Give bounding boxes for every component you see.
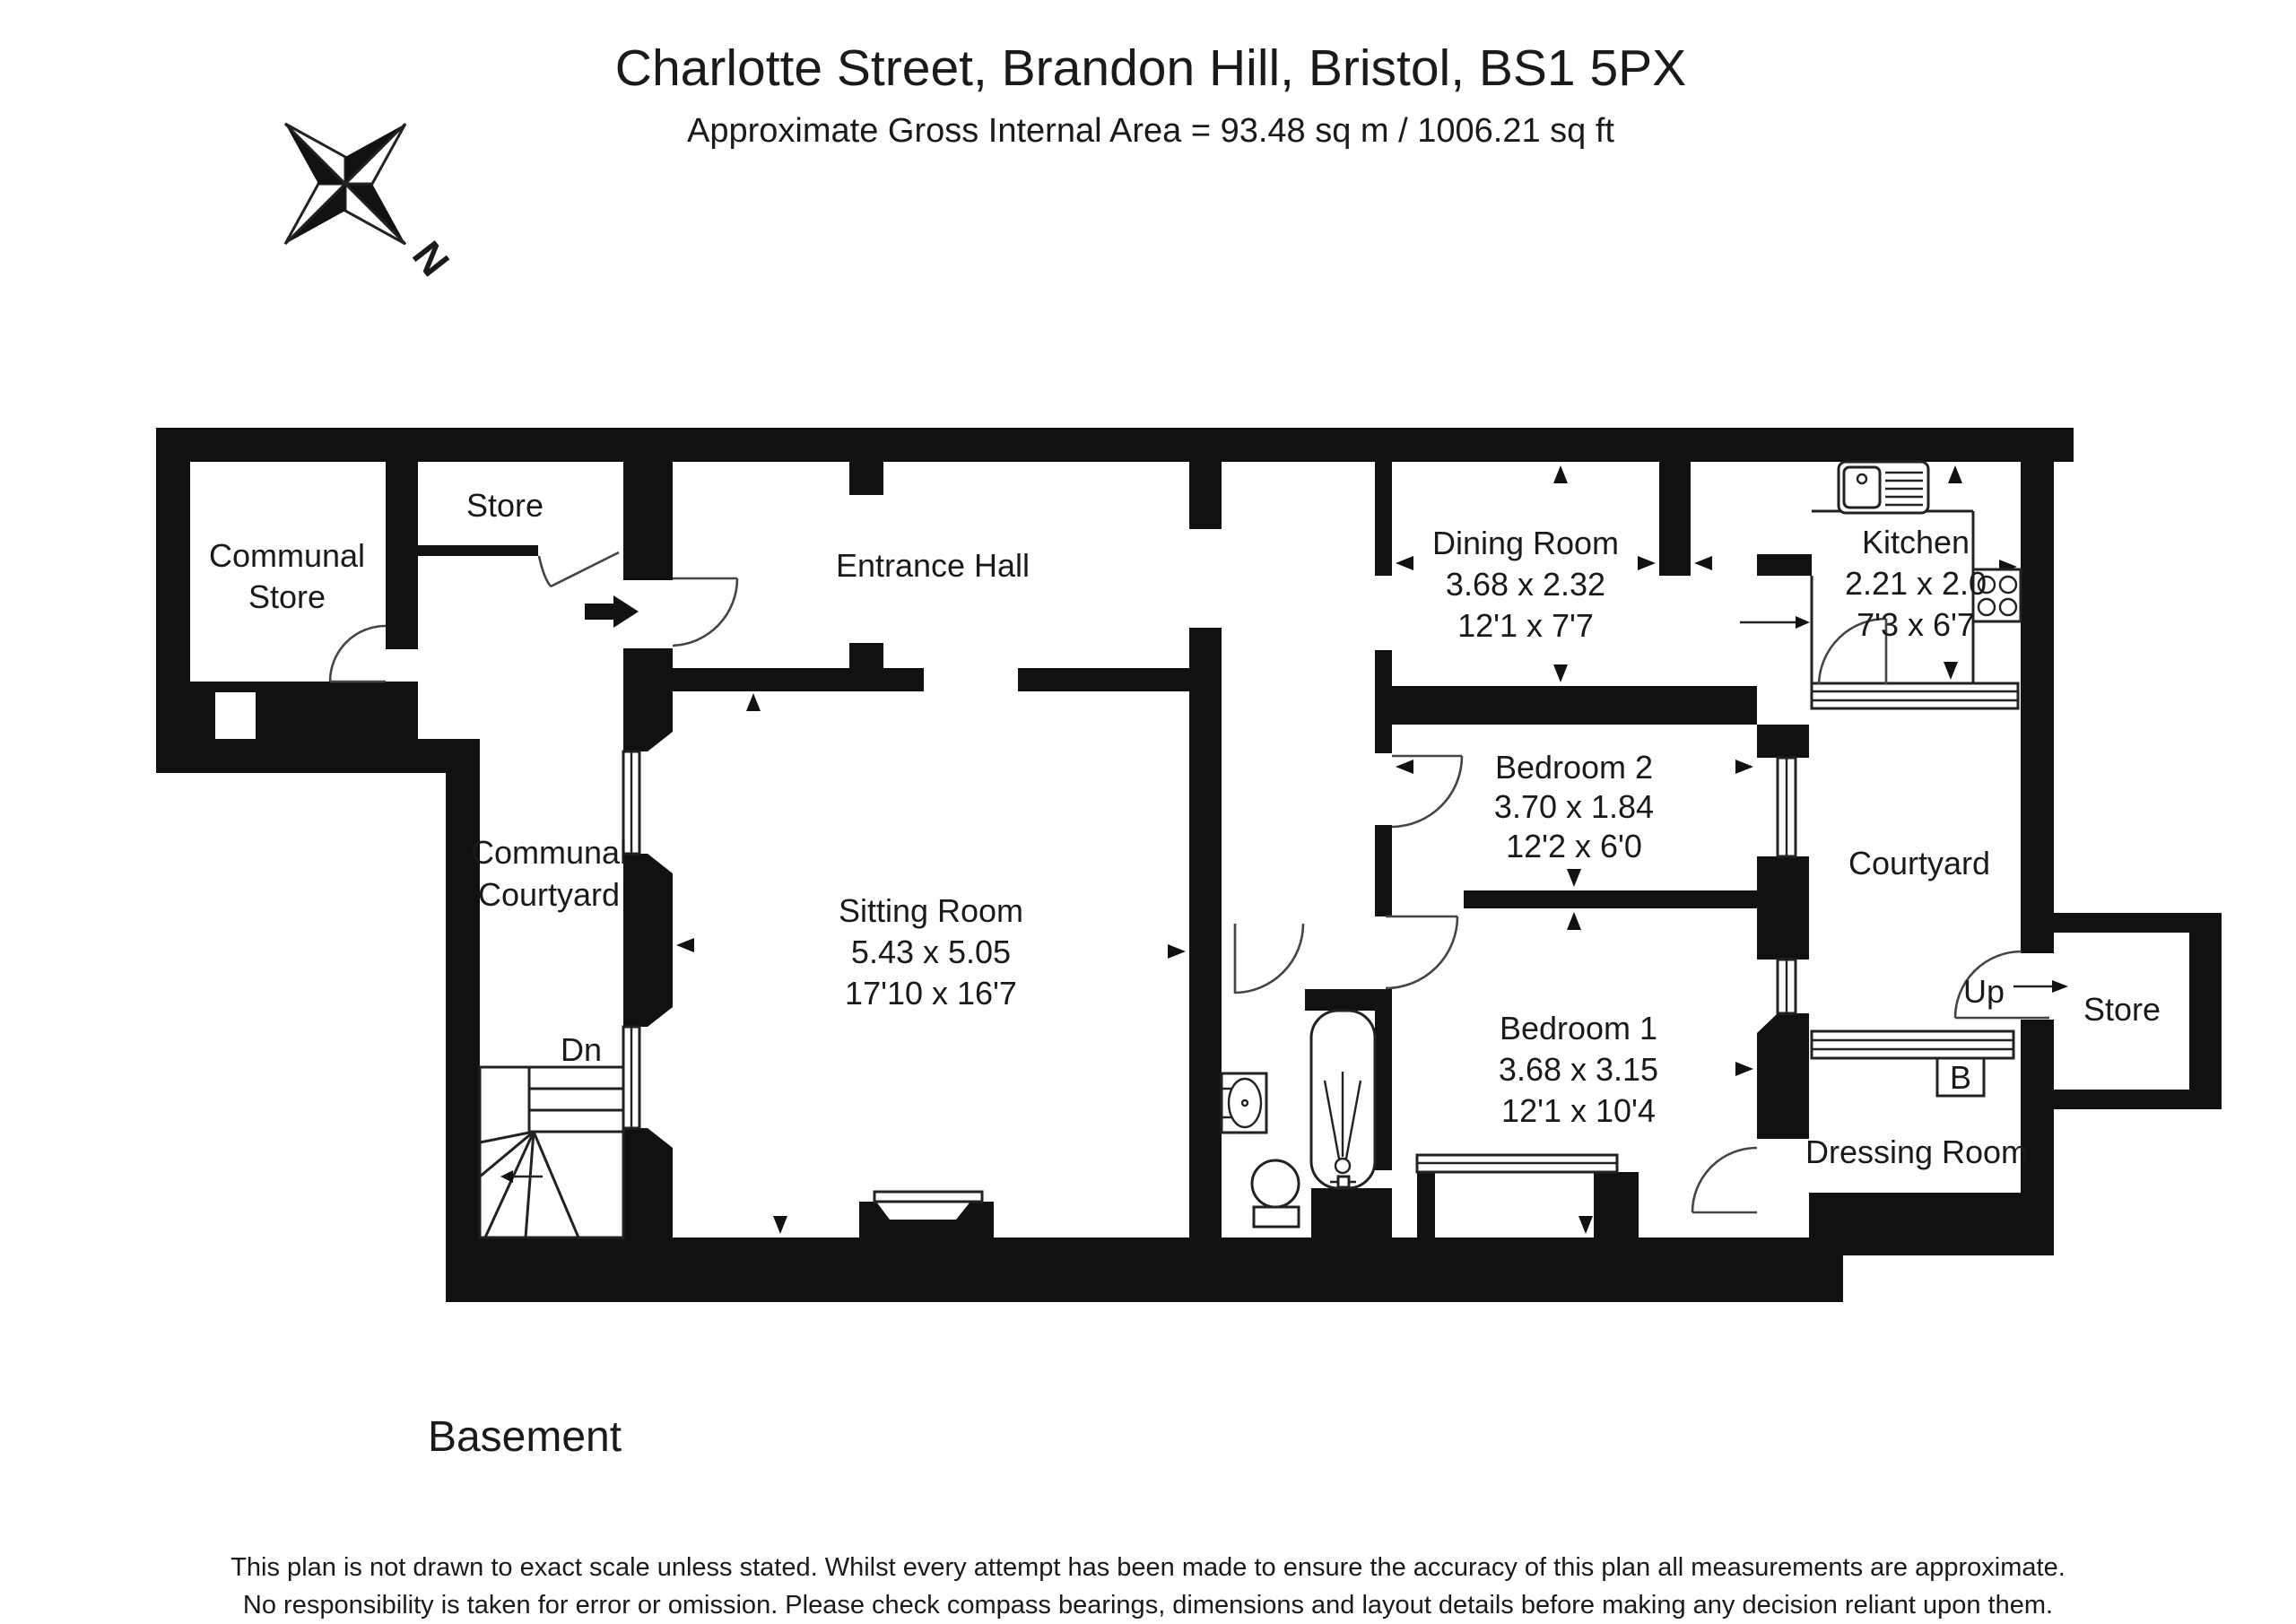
wall: [156, 739, 480, 773]
dim-arrow-down: [1567, 869, 1581, 887]
room-dims-bedroom2-imperial: 12'2 x 6'0: [1506, 828, 1642, 864]
room-dims-sitting-metric: 5.43 x 5.05: [851, 934, 1011, 970]
wall: [1417, 1172, 1435, 1238]
room-label-communal-store-2: Store: [248, 578, 326, 615]
dim-arrow-left: [676, 938, 694, 952]
wall: [1464, 890, 1757, 908]
door: [1235, 924, 1303, 994]
wall: [2047, 1090, 2222, 1109]
room-label-dining: Dining Room: [1432, 525, 1619, 561]
wall: [1594, 1172, 1639, 1238]
dim-arrow-down: [1578, 1216, 1593, 1234]
fireplace: [859, 1192, 994, 1238]
room-label-store-left: Store: [466, 487, 544, 524]
dim-arrow-up: [1948, 465, 1962, 483]
room-dims-kitchen-imperial: 7'3 x 6'7: [1857, 606, 1975, 643]
dim-arrow-right: [1168, 944, 1186, 959]
wall: [1757, 856, 1809, 960]
wall: [1311, 1188, 1392, 1238]
wall-recess: [215, 692, 256, 739]
room-dims-bedroom2-metric: 3.70 x 1.84: [1494, 788, 1654, 825]
bay-pier: [623, 854, 673, 1027]
wall: [1757, 554, 1812, 576]
bath-icon: [1311, 1011, 1375, 1188]
wall: [1375, 686, 1757, 725]
room-label-bedroom2: Bedroom 2: [1495, 749, 1653, 786]
room-dims-dining-metric: 3.68 x 2.32: [1446, 566, 1605, 603]
wall: [1375, 989, 1392, 1170]
wall: [446, 1238, 1843, 1302]
kitchen-flow-arrow: [1740, 616, 1810, 629]
wall: [623, 648, 673, 751]
window: [1778, 758, 1796, 856]
wall: [1189, 628, 1222, 1238]
room-label-communal-courtyard-2: Courtyard: [478, 876, 620, 913]
entry-arrow: [585, 595, 639, 628]
wall: [1305, 989, 1375, 1011]
wall: [2189, 913, 2222, 1109]
wall: [446, 739, 480, 1238]
room-label-kitchen: Kitchen: [1862, 524, 1970, 560]
dim-arrow-left: [1396, 760, 1413, 774]
page-subtitle: Approximate Gross Internal Area = 93.48 …: [687, 112, 1614, 150]
bay-pier: [623, 1128, 673, 1238]
wall: [673, 668, 924, 691]
door: [330, 626, 386, 682]
disclaimer-line1: This plan is not drawn to exact scale un…: [230, 1553, 2066, 1582]
room-dims-sitting-imperial: 17'10 x 16'7: [845, 975, 1017, 1012]
room-dims-bedroom1-imperial: 12'1 x 10'4: [1501, 1092, 1656, 1129]
room-label-bedroom1: Bedroom 1: [1500, 1010, 1657, 1046]
window: [623, 1027, 639, 1128]
stairs-up-label: Up: [1963, 973, 2005, 1010]
room-label-dressing: Dressing Room: [1805, 1133, 2028, 1170]
stairs-down-label: Dn: [561, 1031, 602, 1068]
room-dims-bedroom1-metric: 3.68 x 3.15: [1499, 1051, 1658, 1088]
dim-arrow-up: [1553, 465, 1568, 483]
window: [1778, 960, 1796, 1013]
dim-arrow-up: [1567, 912, 1581, 930]
wall: [1375, 825, 1392, 916]
chimney-pier: [849, 462, 883, 495]
dim-arrow-right: [1735, 760, 1753, 774]
wall: [1189, 462, 1222, 529]
store-flow-arrow: [2013, 980, 2068, 993]
window: [1812, 683, 2018, 708]
room-dims-dining-imperial: 12'1 x 7'7: [1457, 607, 1594, 644]
wall: [156, 428, 190, 773]
wall: [386, 462, 418, 649]
page-title: Charlotte Street, Brandon Hill, Bristol,…: [615, 39, 1686, 97]
boiler-label: B: [1950, 1059, 1971, 1096]
toilet-icon: [1252, 1160, 1299, 1227]
door: [1386, 916, 1457, 988]
dim-arrow-right: [1735, 1062, 1753, 1076]
wall: [1809, 1193, 2054, 1255]
room-label-sitting-room: Sitting Room: [839, 892, 1023, 929]
wall: [2021, 428, 2054, 953]
dim-arrow-up: [746, 693, 761, 711]
wall: [1375, 453, 1392, 576]
dim-arrow-left: [1694, 556, 1712, 570]
room-label-store-right: Store: [2083, 991, 2161, 1028]
door: [673, 578, 737, 646]
wall: [1757, 725, 1809, 758]
wall: [623, 428, 673, 580]
wall: [1757, 1013, 1809, 1139]
room-label-communal-store: Communal: [209, 537, 365, 574]
disclaimer-line2: No responsibility is taken for error or …: [243, 1591, 2053, 1620]
floorplan-page: Charlotte Street, Brandon Hill, Bristol,…: [0, 0, 2296, 1624]
floorplan-drawing: Charlotte Street, Brandon Hill, Bristol,…: [0, 0, 2296, 1624]
stairs: [480, 1067, 623, 1238]
door: [539, 552, 619, 586]
floor-label: Basement: [428, 1413, 622, 1461]
room-label-courtyard: Courtyard: [1848, 845, 1990, 881]
window: [1417, 1155, 1617, 1172]
sink-unit-icon: [1839, 462, 1928, 513]
dim-arrow-down: [1944, 662, 1958, 680]
wall: [1018, 668, 1189, 691]
wall: [156, 428, 2074, 462]
dim-arrow-right: [1638, 556, 1656, 570]
window: [1812, 1031, 2013, 1058]
room-label-entrance-hall: Entrance Hall: [836, 547, 1030, 584]
wall: [418, 545, 538, 556]
door: [1692, 1148, 1757, 1212]
dim-arrow-down: [773, 1216, 787, 1234]
room-label-communal-courtyard: Communal: [471, 834, 627, 871]
chimney-pier: [849, 643, 883, 691]
basin-icon: [1222, 1073, 1266, 1133]
wall: [1659, 428, 1691, 576]
north-label: N: [404, 232, 458, 284]
dim-arrow-left: [1396, 556, 1413, 570]
dim-arrow-down: [1553, 664, 1568, 682]
room-dims-kitchen-metric: 2.21 x 2.0: [1845, 565, 1987, 602]
compass-rose: N: [285, 124, 458, 284]
